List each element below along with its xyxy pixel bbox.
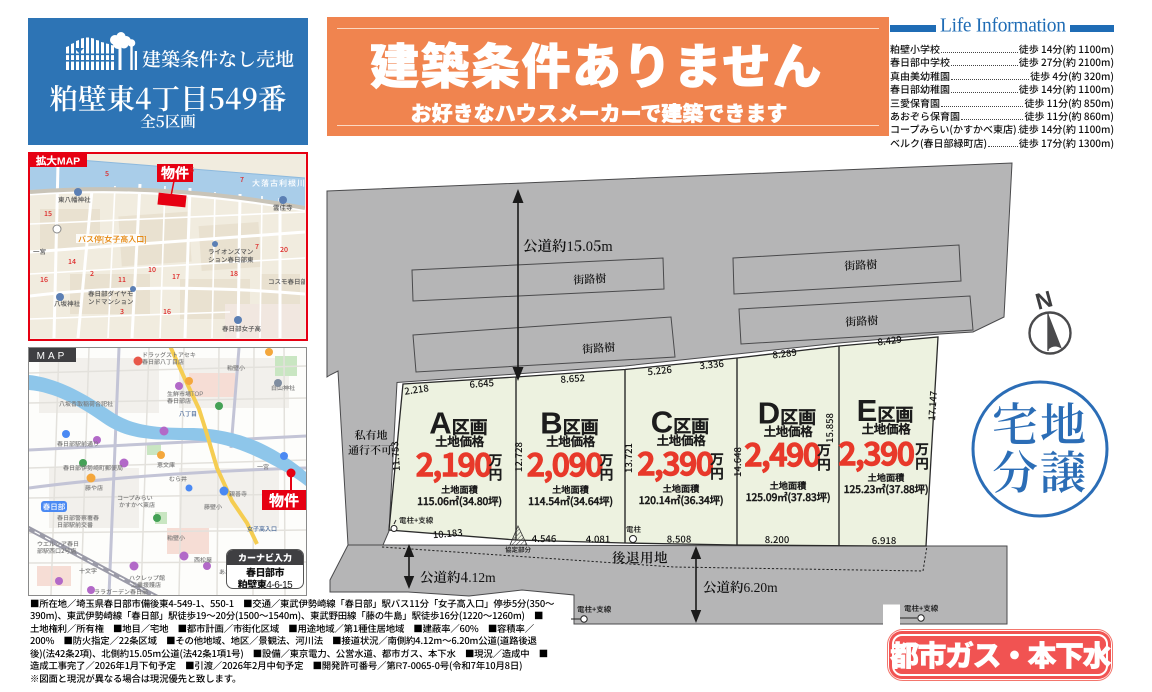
- svg-text:円: 円: [600, 464, 614, 484]
- svg-text:親善寺: 親善寺: [229, 489, 247, 498]
- svg-text:8.652: 8.652: [560, 370, 585, 386]
- svg-text:6.645: 6.645: [469, 375, 494, 391]
- svg-text:粕壁小: 粕壁小: [227, 363, 245, 372]
- svg-text:8.429: 8.429: [877, 332, 903, 349]
- svg-text:分譲: 分譲: [992, 437, 1088, 503]
- svg-text:恵文庫: 恵文庫: [157, 460, 175, 469]
- svg-text:十文字: 十文字: [79, 566, 97, 575]
- svg-text:部駅西口2号店: 部駅西口2号店: [37, 546, 76, 555]
- svg-text:白山神社: 白山神社: [271, 383, 295, 392]
- svg-text:6.918: 6.918: [872, 533, 897, 547]
- svg-text:114.54㎡(34.64坪): 114.54㎡(34.64坪): [528, 493, 613, 508]
- svg-text:通行不可: 通行不可: [348, 442, 392, 458]
- svg-text:17.147: 17.147: [924, 390, 940, 421]
- svg-text:一宮: 一宮: [257, 462, 269, 471]
- svg-text:10.183: 10.183: [432, 525, 463, 542]
- svg-text:後退用地: 後退用地: [612, 547, 668, 567]
- svg-text:20: 20: [280, 245, 288, 255]
- svg-text:3.336: 3.336: [699, 356, 725, 372]
- svg-text:120.14㎡(36.34坪): 120.14㎡(36.34坪): [639, 492, 724, 507]
- svg-text:藤や店: 藤や店: [85, 483, 103, 492]
- svg-text:電柱+支線: 電柱+支線: [399, 515, 434, 526]
- svg-text:女子高入口: 女子高入口: [247, 524, 277, 533]
- svg-text:11.753: 11.753: [387, 441, 403, 472]
- svg-text:バス停[女子高入口]: バス停[女子高入口]: [78, 234, 146, 245]
- svg-text:125.23㎡(37.88坪): 125.23㎡(37.88坪): [844, 481, 929, 496]
- svg-text:7: 7: [240, 175, 244, 185]
- svg-text:電柱+支線: 電柱+支線: [577, 604, 612, 615]
- svg-text:2,190: 2,190: [416, 440, 491, 486]
- svg-text:むら井: むら井: [169, 474, 187, 483]
- svg-text:10: 10: [148, 265, 156, 275]
- svg-text:春日部八丁目店: 春日部八丁目店: [142, 357, 184, 366]
- svg-text:4.546: 4.546: [532, 531, 557, 545]
- svg-text:日部駅前交番: 日部駅前交番: [57, 520, 93, 529]
- svg-text:4.081: 4.081: [586, 532, 611, 546]
- svg-text:物件: 物件: [160, 163, 189, 183]
- svg-text:18: 18: [230, 269, 238, 279]
- svg-text:街路樹: 街路樹: [582, 339, 616, 357]
- svg-text:MAP: MAP: [37, 348, 68, 362]
- svg-text:街路樹: 街路樹: [573, 270, 607, 288]
- svg-text:ララガーデン春日部: ララガーデン春日部: [94, 587, 148, 595]
- svg-text:公道約6.20m: 公道約6.20m: [703, 576, 778, 596]
- svg-text:14: 14: [68, 257, 76, 267]
- svg-text:円: 円: [489, 464, 503, 484]
- svg-text:17: 17: [172, 272, 180, 282]
- svg-text:11: 11: [118, 275, 126, 285]
- svg-text:公道約4.12m: 公道約4.12m: [420, 566, 496, 586]
- svg-text:2,490: 2,490: [744, 430, 819, 476]
- svg-text:拡大MAP: 拡大MAP: [35, 154, 80, 169]
- svg-text:西松屋: 西松屋: [194, 555, 212, 564]
- svg-text:8.200: 8.200: [765, 532, 790, 546]
- svg-text:5: 5: [105, 169, 109, 179]
- svg-text:一宮: 一宮: [33, 246, 47, 256]
- svg-text:春日部伊勢崎町郵便局: 春日部伊勢崎町郵便局: [63, 463, 123, 472]
- svg-text:3: 3: [120, 307, 124, 317]
- svg-text:115.06㎡(34.80坪): 115.06㎡(34.80坪): [417, 493, 502, 508]
- svg-text:コスモ春日部: コスモ春日部: [268, 276, 305, 286]
- svg-text:電柱: 電柱: [626, 524, 641, 535]
- svg-text:円: 円: [710, 463, 724, 483]
- svg-text:八丁目: 八丁目: [179, 409, 197, 418]
- svg-text:6: 6: [190, 165, 194, 175]
- svg-text:16: 16: [163, 307, 171, 317]
- svg-text:16: 16: [40, 275, 48, 285]
- svg-text:13.721: 13.721: [621, 443, 635, 473]
- svg-text:2,390: 2,390: [838, 429, 913, 475]
- svg-text:12.728: 12.728: [511, 442, 525, 472]
- svg-text:かすかべ東店: かすかべ東店: [119, 500, 155, 509]
- svg-text:2: 2: [90, 269, 94, 279]
- svg-text:ション春日部東: ション春日部東: [208, 254, 254, 264]
- svg-text:ンドマンション: ンドマンション: [88, 296, 134, 306]
- svg-text:私有地: 私有地: [355, 427, 388, 443]
- svg-text:電柱+支線: 電柱+支線: [904, 603, 939, 614]
- svg-text:8.508: 8.508: [667, 532, 692, 546]
- svg-text:春日部: 春日部: [43, 502, 66, 513]
- svg-text:物件: 物件: [268, 490, 299, 511]
- svg-text:公道約15.05m: 公道約15.05m: [523, 235, 613, 256]
- svg-text:春日部店: 春日部店: [167, 396, 191, 405]
- svg-text:125.09㎡(37.83坪): 125.09㎡(37.83坪): [746, 489, 831, 504]
- svg-text:円: 円: [915, 453, 929, 473]
- svg-text:円: 円: [817, 454, 831, 474]
- svg-text:粕壁小: 粕壁小: [167, 533, 185, 542]
- svg-text:八坂香取稲荷合祀社: 八坂香取稲荷合祀社: [59, 399, 113, 408]
- svg-text:東八幡神社: 東八幡神社: [58, 194, 91, 204]
- svg-text:街路樹: 街路樹: [844, 256, 878, 274]
- svg-text:14.648: 14.648: [730, 447, 744, 477]
- svg-text:N: N: [1031, 279, 1056, 316]
- svg-text:2,090: 2,090: [527, 440, 602, 486]
- svg-text:7: 7: [255, 242, 259, 252]
- svg-text:5.226: 5.226: [647, 362, 673, 378]
- svg-text:8.289: 8.289: [772, 345, 798, 362]
- svg-text:15: 15: [44, 209, 52, 219]
- svg-text:春日部女子高: 春日部女子高: [222, 323, 262, 333]
- svg-text:大落古利根川: 大落古利根川: [252, 178, 305, 189]
- svg-text:春日部駅前通り: 春日部駅前通り: [57, 439, 99, 448]
- svg-text:藤壁小: 藤壁小: [204, 502, 222, 511]
- svg-text:2,390: 2,390: [637, 439, 712, 485]
- svg-text:協定部分: 協定部分: [505, 544, 532, 554]
- svg-text:街路樹: 街路樹: [845, 312, 879, 330]
